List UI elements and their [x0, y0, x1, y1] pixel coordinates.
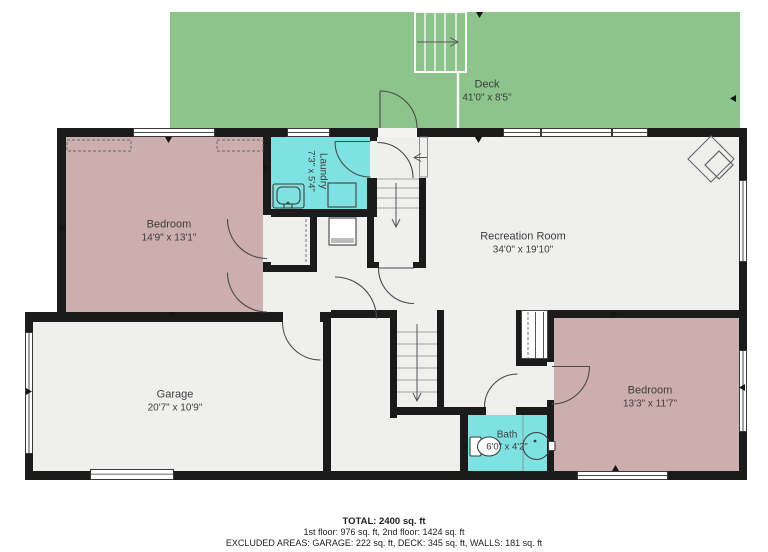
- room-name: Deck: [462, 78, 511, 92]
- wall: [460, 415, 468, 471]
- wall: [323, 322, 331, 471]
- room-dims: 20'7" x 10'9": [148, 402, 203, 415]
- wall: [419, 178, 426, 268]
- room-label-laundry: Laundry 7'3" x 5'4": [306, 150, 329, 192]
- wall: [437, 318, 444, 410]
- room-label-recreation: Recreation Room 34'0" x 19'10": [480, 230, 566, 257]
- door-opening: [547, 362, 554, 400]
- floor-plan: Deck 41'0" x 8'5" Laundry 7'3" x 5'4" Be…: [0, 0, 768, 552]
- room-dims: 34'0" x 19'10": [480, 244, 566, 257]
- wall: [367, 178, 374, 268]
- wall: [263, 209, 377, 217]
- window: [739, 350, 747, 432]
- room-label-bedroom-1: Bedroom 14'9" x 13'1": [142, 218, 197, 245]
- door-opening: [283, 312, 320, 322]
- window: [739, 180, 747, 262]
- wall: [331, 310, 397, 318]
- room-name: Garage: [148, 388, 203, 402]
- room-label-deck: Deck 41'0" x 8'5": [462, 78, 511, 105]
- room-name: Recreation Room: [480, 230, 566, 244]
- closet-sliding-doors: [521, 310, 548, 359]
- floor-areas-text: 1st floor: 976 sq. ft, 2nd floor: 1424 s…: [0, 527, 768, 538]
- wall: [263, 265, 317, 272]
- room-label-bedroom-2: Bedroom 13'3" x 11'7": [623, 384, 677, 411]
- window: [577, 471, 668, 480]
- window: [612, 128, 648, 137]
- window: [541, 128, 612, 137]
- wall: [516, 359, 549, 366]
- window: [503, 128, 541, 137]
- garage-door: [90, 469, 174, 480]
- wall: [413, 262, 419, 268]
- room-dims: 14'9" x 13'1": [142, 232, 197, 245]
- wall: [374, 262, 379, 268]
- window: [287, 128, 330, 137]
- room-deck: [170, 12, 740, 136]
- window: [133, 128, 215, 137]
- area-summary: TOTAL: 2400 sq. ft 1st floor: 976 sq. ft…: [0, 516, 768, 548]
- room-name: Laundry: [317, 150, 329, 192]
- wall: [390, 318, 397, 418]
- wall: [547, 310, 747, 318]
- wall: [390, 407, 486, 415]
- room-dims: 7'3" x 5'4": [306, 150, 317, 192]
- window: [25, 332, 33, 454]
- room-name: Bedroom: [623, 384, 677, 398]
- excluded-areas-text: EXCLUDED AREAS: GARAGE: 222 sq. ft, DECK…: [0, 538, 768, 549]
- room-dims: 41'0" x 8'5": [462, 92, 511, 105]
- wall: [57, 128, 66, 320]
- room-dims: 6'0" x 4'2": [486, 442, 528, 453]
- room-label-garage: Garage 20'7" x 10'9": [148, 388, 203, 415]
- wall: [437, 310, 444, 318]
- room-name: Bedroom: [142, 218, 197, 232]
- total-area-text: TOTAL: 2400 sq. ft: [0, 516, 768, 527]
- room-name: Bath: [486, 430, 528, 442]
- room-dims: 13'3" x 11'7": [623, 398, 677, 411]
- room-label-bath: Bath 6'0" x 4'2": [486, 430, 528, 453]
- door-opening: [263, 272, 271, 312]
- door-opening: [378, 128, 417, 137]
- wall: [370, 136, 377, 141]
- wall: [310, 217, 317, 272]
- door-opening: [263, 215, 271, 262]
